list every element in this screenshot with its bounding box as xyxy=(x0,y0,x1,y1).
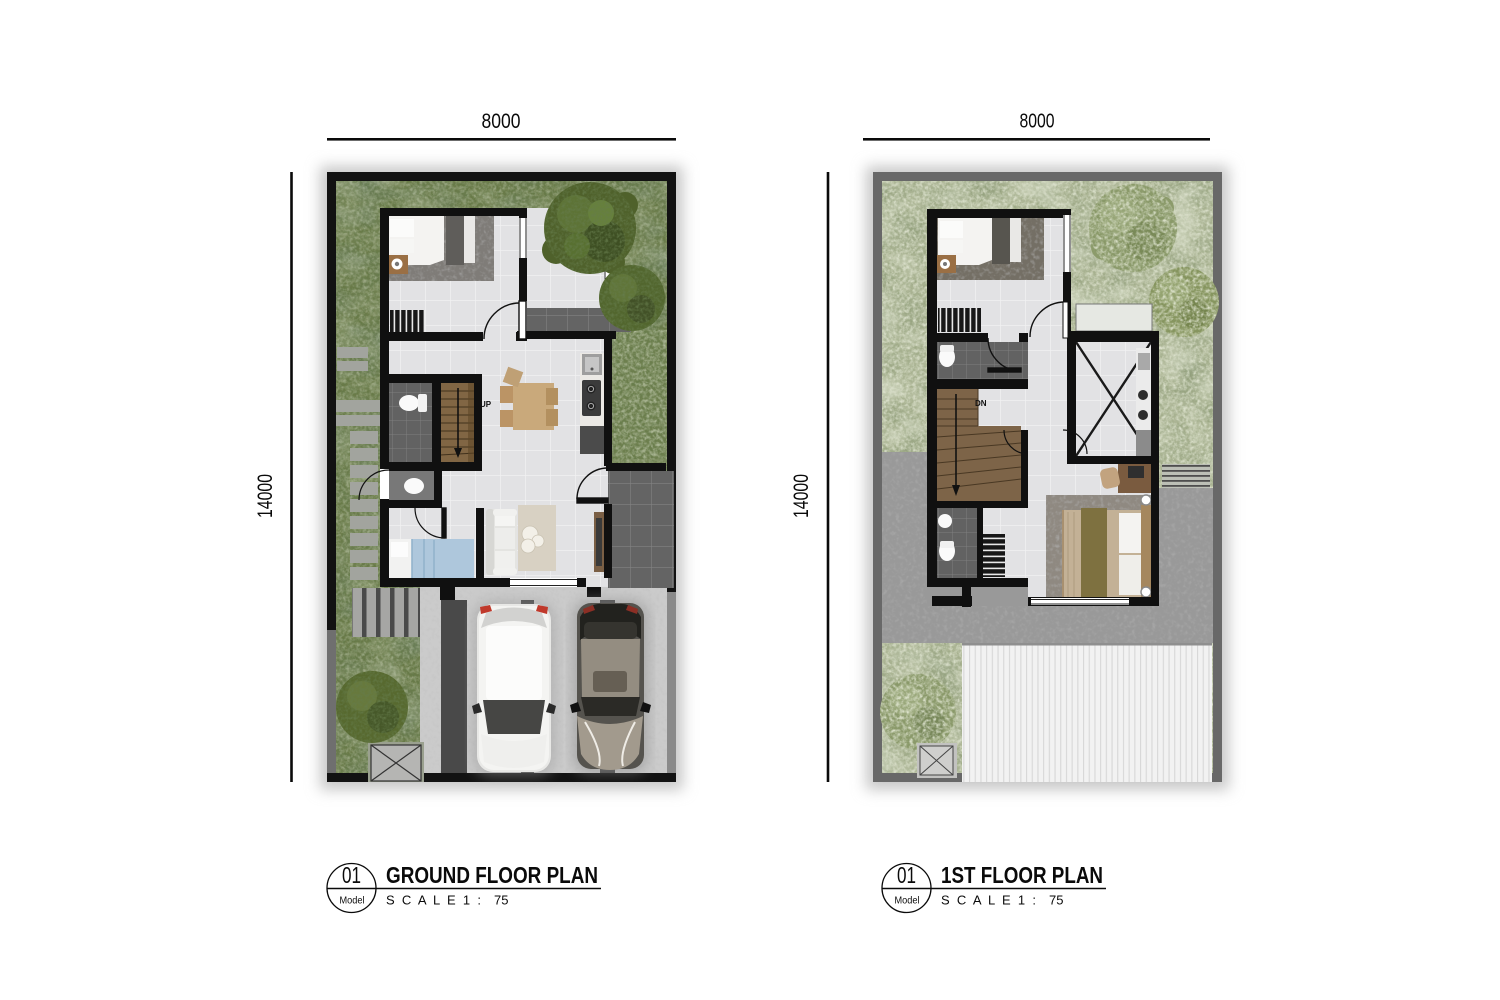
svg-text:14000: 14000 xyxy=(254,474,277,518)
svg-text:8000: 8000 xyxy=(1020,111,1055,133)
svg-text:01: 01 xyxy=(897,862,916,888)
svg-text:8000: 8000 xyxy=(482,110,521,133)
svg-text:14000: 14000 xyxy=(790,474,813,518)
svg-text:Model: Model xyxy=(895,896,920,907)
svg-text:GROUND FLOOR PLAN: GROUND FLOOR PLAN xyxy=(386,862,598,888)
svg-text:01: 01 xyxy=(342,862,361,888)
svg-text:DN: DN xyxy=(975,399,987,408)
svg-text:75: 75 xyxy=(1049,893,1063,908)
svg-text:UP: UP xyxy=(480,400,492,409)
svg-text:1ST FLOOR PLAN: 1ST FLOOR PLAN xyxy=(941,862,1103,888)
svg-text:Model: Model xyxy=(340,896,365,907)
svg-text:75: 75 xyxy=(494,893,508,908)
